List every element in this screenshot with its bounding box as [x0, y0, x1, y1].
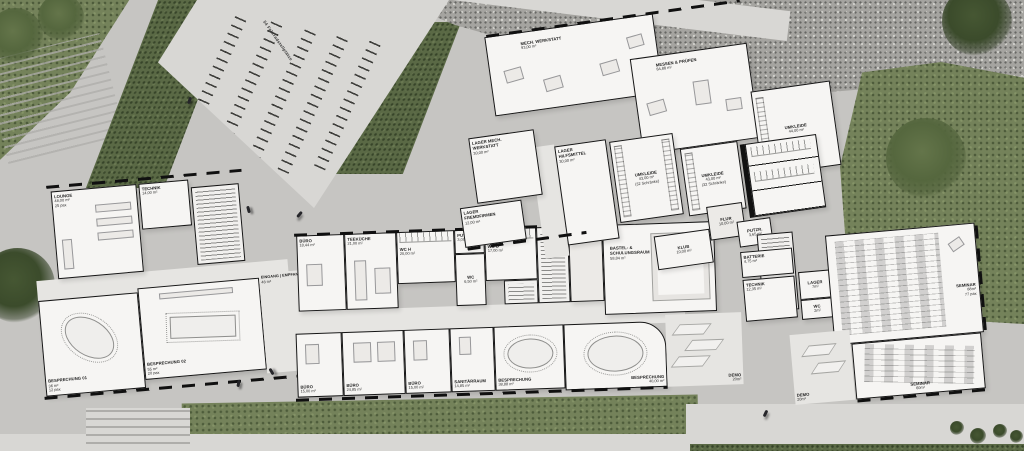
- meeting-table: [170, 315, 237, 339]
- room-buero: BÜRO 15,00 m²: [403, 328, 451, 394]
- seminar-seating: [835, 233, 947, 336]
- room-technik: TECHNIK 12,35 m²: [742, 275, 797, 321]
- meeting-table: [507, 338, 554, 370]
- tree: [886, 118, 966, 198]
- room-wc-herren: WC H 20,00 m²: [396, 230, 456, 284]
- bench: [801, 343, 836, 357]
- room-klub: KLUB 10,00 m²: [654, 229, 714, 270]
- seminar-seating: [864, 344, 975, 384]
- sofa: [62, 239, 75, 270]
- machine: [725, 97, 743, 111]
- room-sanitaerraum: SANITÄRRAUM 14,85 m²: [449, 327, 495, 392]
- wc-stalls: [399, 231, 451, 243]
- wc-stalls: [754, 164, 815, 182]
- wing-right: BATTERIE 4,75 m² TECHNIK 12,35 m² LAGER …: [752, 207, 1007, 412]
- architectural-site-plan: 54 Fahrradstellplätze LOUNGE 48,00 m² 25…: [0, 0, 1024, 451]
- fixture: [459, 337, 472, 355]
- room-besprechung: BESPRECHUNG 40,00 m²: [563, 321, 667, 391]
- shrub: [993, 424, 1007, 438]
- room-besprechung-02: BESPRECHUNG 02 55 m² 20 pax: [137, 278, 267, 380]
- machine: [692, 79, 711, 105]
- shrub: [950, 421, 964, 435]
- room-buero: BÜRO 24,85 m²: [342, 330, 406, 396]
- desk: [353, 342, 372, 363]
- desk: [305, 344, 320, 364]
- room-wc: WC 2m²: [800, 297, 834, 320]
- table: [97, 229, 134, 240]
- kitchen-counter: [354, 260, 367, 300]
- room-technik: TECHNIK 14,00 m²: [138, 180, 192, 230]
- table: [96, 216, 133, 227]
- bench: [811, 360, 846, 374]
- shrub: [1010, 430, 1023, 443]
- bench: [684, 339, 724, 351]
- stairs-bottom-left: [86, 408, 190, 444]
- lockers: [684, 152, 700, 211]
- machine: [599, 59, 620, 76]
- wing-left: LOUNGE 48,00 m² 25 pax TECHNIK 14,00 m² …: [22, 161, 330, 405]
- demo-area: DEMO 20m²: [789, 330, 855, 405]
- room-buero: BÜRO 15,00 m²: [296, 332, 344, 398]
- room-buero: BÜRO 18,44 m²: [296, 234, 347, 312]
- room-lager: LAGER 7m²: [798, 269, 832, 300]
- machine: [626, 33, 645, 49]
- sideboard: [159, 287, 233, 299]
- demo-area: DEMO 20m²: [665, 312, 743, 387]
- wc-cells: [745, 134, 827, 217]
- bench: [672, 323, 712, 335]
- room-lager-mech-werkstatt: LAGER MECH. WERKSTATT 30,00 m²: [468, 129, 543, 204]
- bike-rack-row: [176, 12, 248, 154]
- wc-stalls: [750, 139, 811, 157]
- stair-core: [191, 183, 246, 265]
- room-umkleide: UMKLEIDE 43,00 m² (32 Schränke): [609, 133, 684, 223]
- bench: [671, 355, 711, 367]
- machine: [543, 75, 564, 92]
- table: [374, 267, 391, 294]
- room-batterie: BATTERIE 4,75 m²: [740, 248, 794, 278]
- room-teekueche: TEEKÜCHE 21,00 m²: [344, 232, 399, 310]
- desk: [413, 340, 428, 360]
- meeting-table: [587, 335, 644, 373]
- room-besprechung: BESPRECHUNG 38,88 m²: [493, 324, 565, 390]
- desk: [377, 341, 396, 362]
- bike-rack-row: [208, 18, 283, 167]
- machine: [646, 99, 667, 116]
- meeting-table: [57, 308, 122, 368]
- room-besprechung-01: BESPRECHUNG 01 36 m² 12 pax: [38, 292, 146, 396]
- machine: [503, 66, 524, 83]
- lectern: [948, 236, 965, 252]
- grass-edge-bottom-right: [690, 444, 1024, 451]
- room-seminar-gross: SEMINAR 88m² 77 pax: [825, 223, 984, 346]
- room-lounge: LOUNGE 48,00 m² 25 pax: [51, 184, 144, 279]
- lockers: [614, 145, 632, 217]
- shrub: [970, 428, 986, 444]
- table: [95, 202, 132, 213]
- desk: [306, 264, 323, 287]
